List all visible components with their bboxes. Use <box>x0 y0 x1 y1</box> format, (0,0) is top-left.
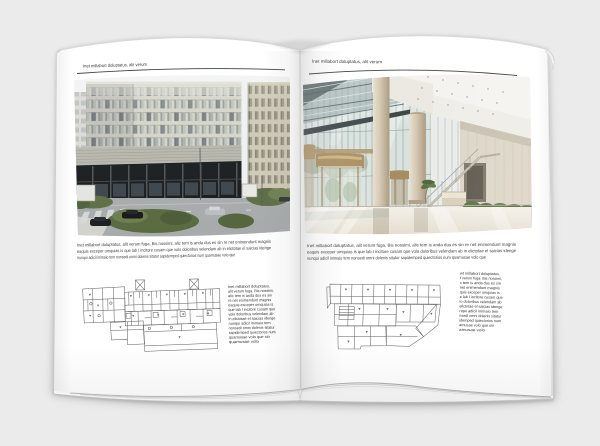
svg-text:quamusae volo: quamusae volo <box>229 340 259 345</box>
svg-text:amusae volo: amusae volo <box>459 328 485 332</box>
